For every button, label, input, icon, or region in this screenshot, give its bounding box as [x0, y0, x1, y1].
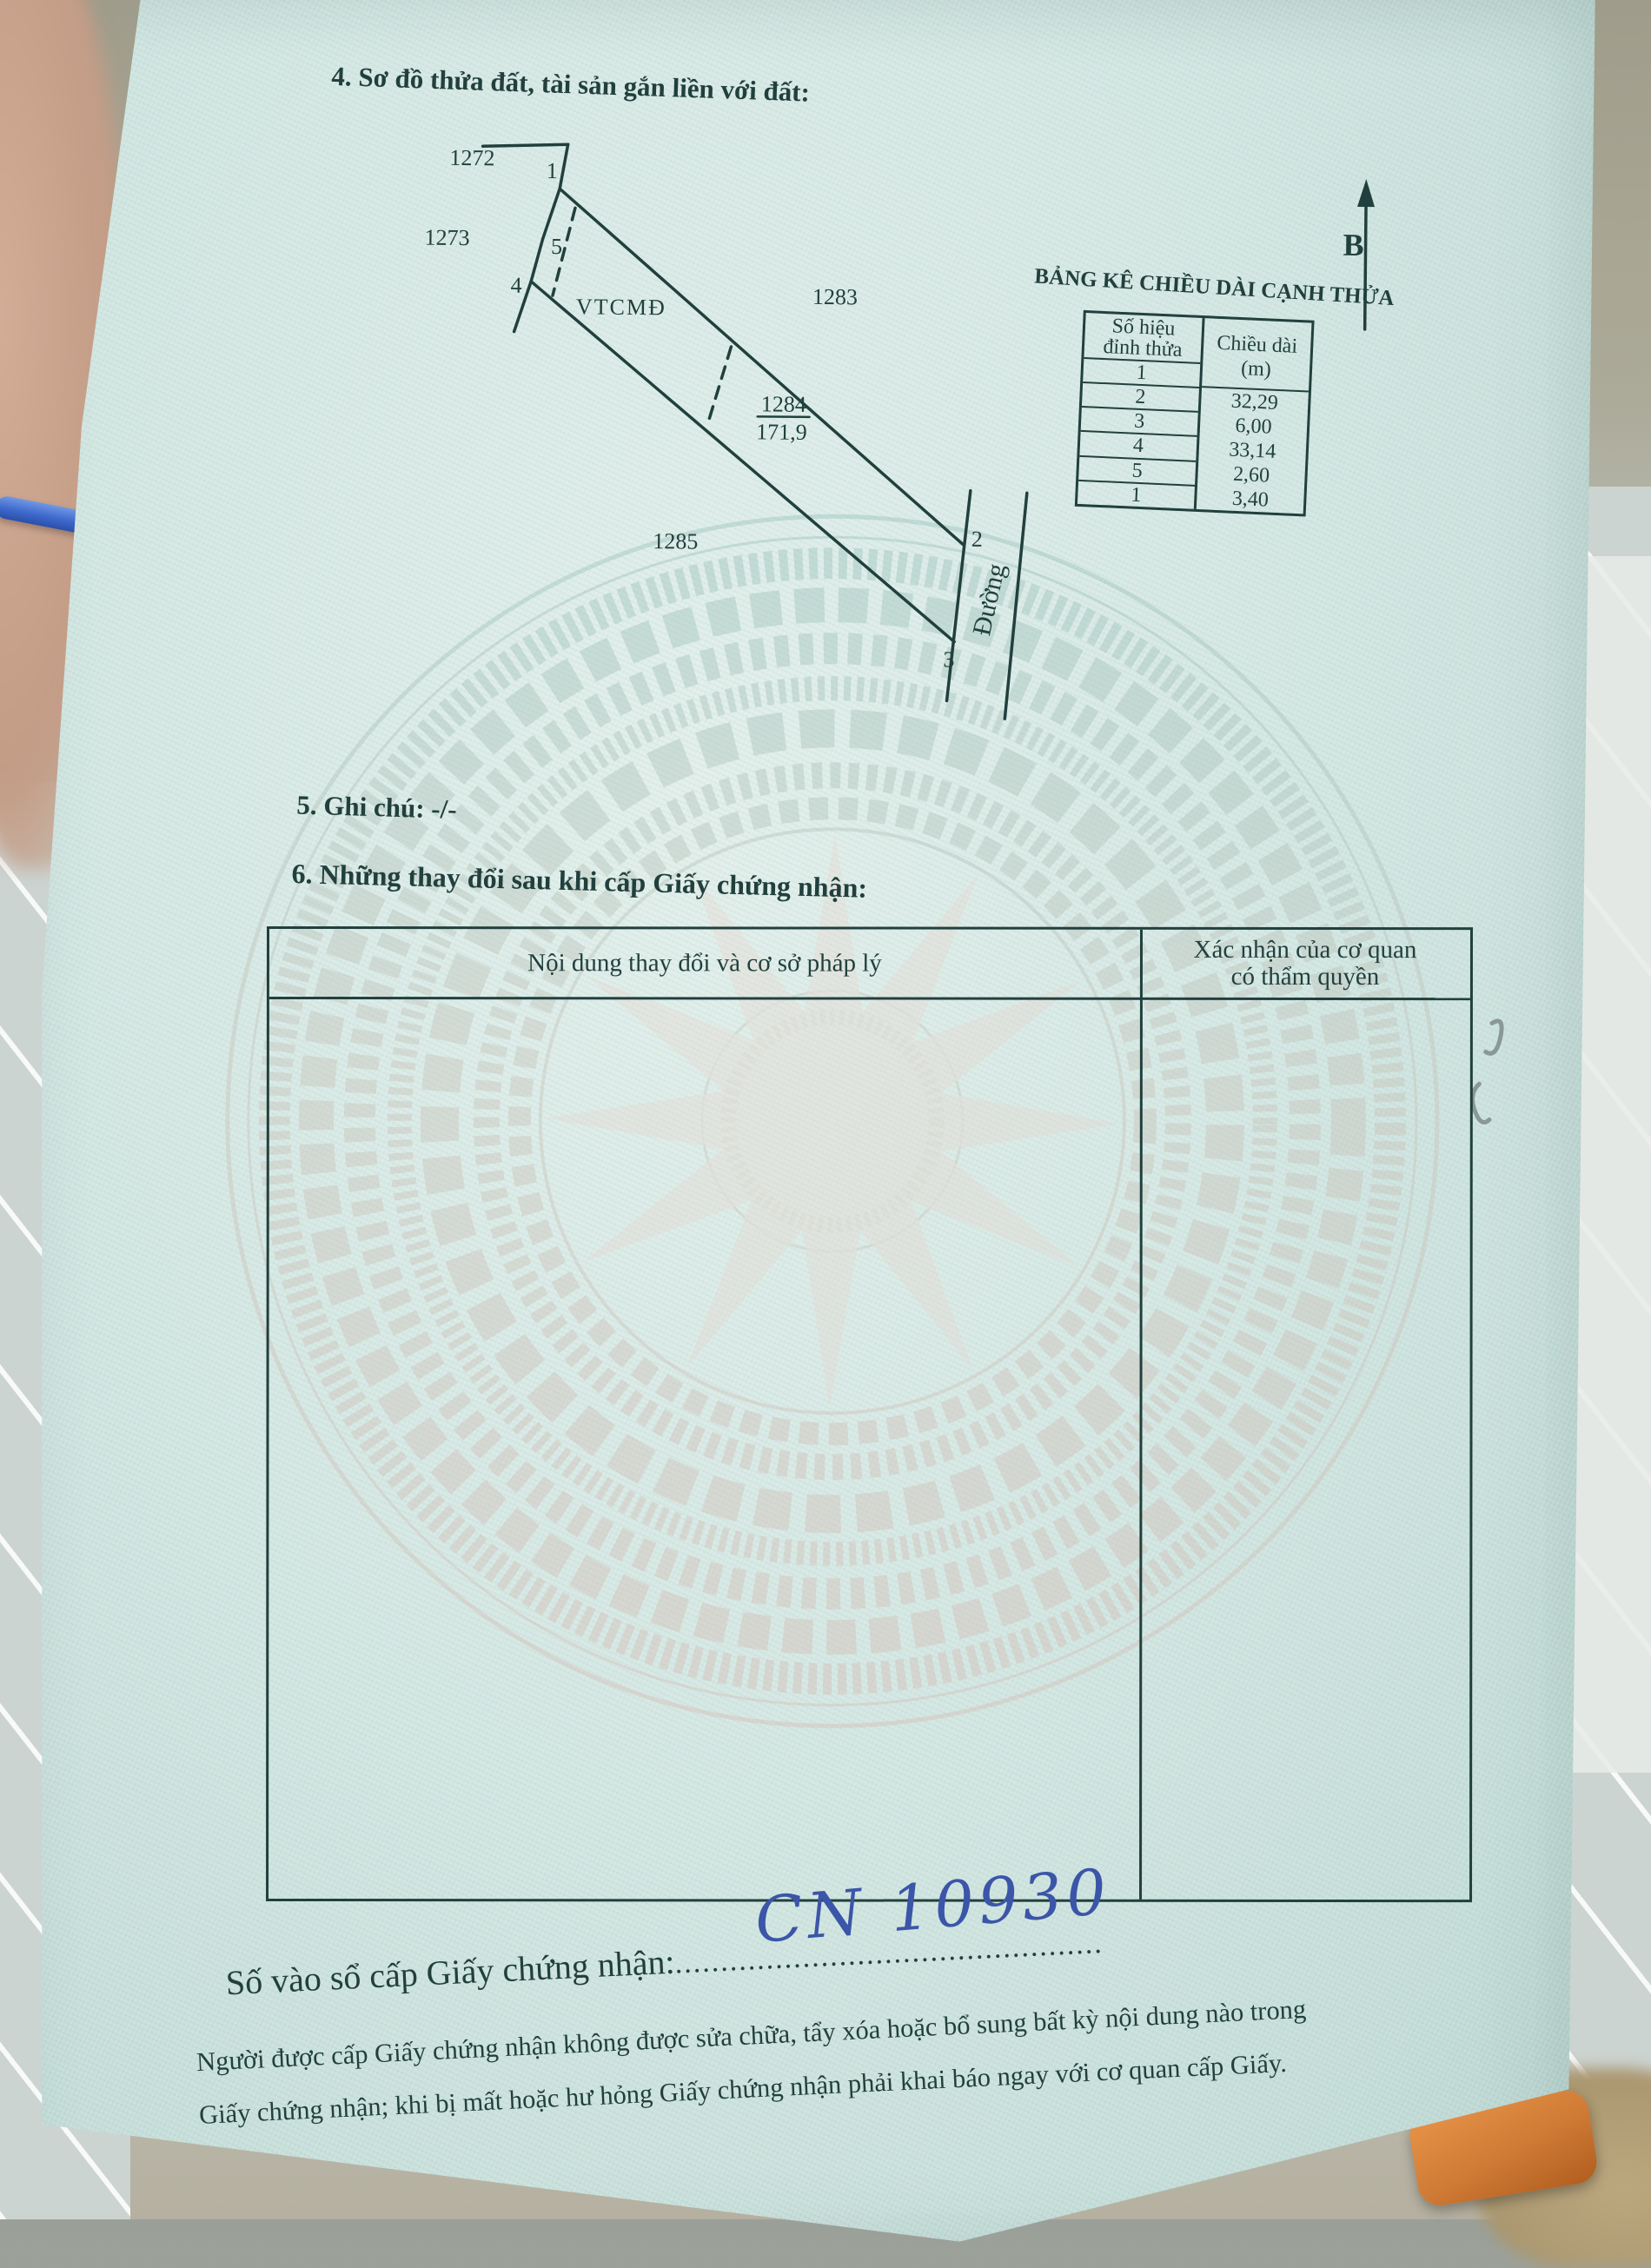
edge-table-length-column: Chiều dài (m) 32,29 6,00 33,14 2,60 3,40 [1197, 318, 1312, 514]
parcel-edge-1-2 [556, 189, 966, 544]
changes-table-content-column [269, 929, 1143, 1900]
vertex-label-5: 5 [551, 234, 562, 259]
edge-table-vertex-header: Số hiệu đỉnh thửa [1084, 313, 1202, 362]
subject-parcel-number: 1284 [761, 391, 806, 416]
section5-title: 5. Ghi chú: -/- [296, 790, 457, 826]
registry-label: Số vào sổ cấp Giấy chứng nhận: [225, 1942, 676, 2003]
staple-curl-2 [1472, 1084, 1489, 1122]
edge-length-table: Số hiệu đỉnh thửa 1 2 3 4 5 1 Chiều dài … [1075, 310, 1315, 517]
vertex-label-4: 4 [510, 273, 521, 298]
parcel-label-1273: 1273 [424, 225, 469, 250]
north-label: B [1343, 228, 1363, 262]
north-arrow-head [1357, 179, 1375, 207]
edge-table-length-header: Chiều dài (m) [1202, 318, 1311, 392]
zone-label-vtcmd: VTCMĐ [576, 294, 666, 320]
vertex-label-1: 1 [547, 158, 558, 183]
certificate-page: 1272 1 1273 5 4 VTCMĐ 1283 1284 171,9 12… [23, 0, 1607, 2248]
vertex-label-2: 2 [971, 527, 983, 552]
length-value: 3,40 [1197, 485, 1304, 514]
photo-of-land-certificate: { "document": { "section4_title": "4. Sơ… [0, 0, 1651, 2219]
staple-curl-1 [1486, 1021, 1502, 1053]
vertex-label-3: 3 [943, 647, 954, 672]
subject-parcel-area: 171,9 [756, 419, 807, 445]
parcel-label-1272: 1272 [449, 145, 494, 170]
parcel-label-1283: 1283 [812, 284, 858, 309]
vtcmd-dashed-line-lower [707, 347, 732, 427]
boundary-line-1272-1273 [483, 143, 568, 147]
changes-table-content-header: Nội dung thay đổi và cơ sở pháp lý [269, 929, 1140, 998]
vertex-row: 1 [1077, 480, 1195, 509]
parcel-label-1285: 1285 [653, 528, 698, 554]
north-arrow-shaft [1365, 200, 1366, 329]
changes-table-authority-header: Xác nhận của cơ quan có thẩm quyền [1140, 930, 1470, 998]
changes-table: Nội dung thay đổi và cơ sở pháp lý Xác n… [266, 926, 1473, 1902]
edge-table-vertex-column: Số hiệu đỉnh thửa 1 2 3 4 5 1 [1077, 313, 1205, 509]
